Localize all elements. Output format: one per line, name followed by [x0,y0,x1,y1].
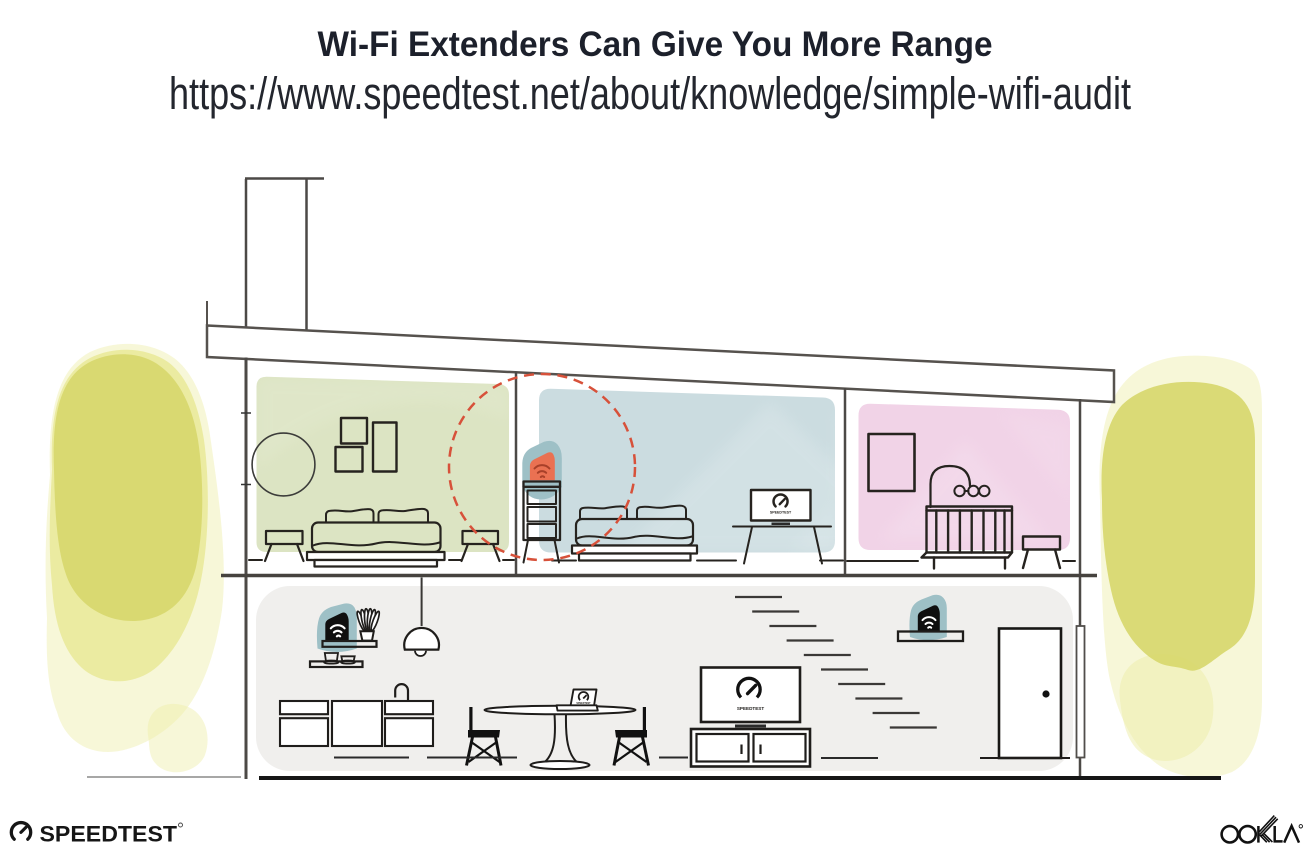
svg-text:Wi-Fi Extenders Can Give You M: Wi-Fi Extenders Can Give You More Range [318,24,993,64]
svg-text:SPEEDTEST: SPEEDTEST [737,706,765,711]
svg-text:SPEEDTEST: SPEEDTEST [770,511,792,515]
svg-text:SPEEDTEST: SPEEDTEST [40,822,178,847]
svg-text:https://www.speedtest.net/abou: https://www.speedtest.net/about/knowledg… [169,68,1131,119]
